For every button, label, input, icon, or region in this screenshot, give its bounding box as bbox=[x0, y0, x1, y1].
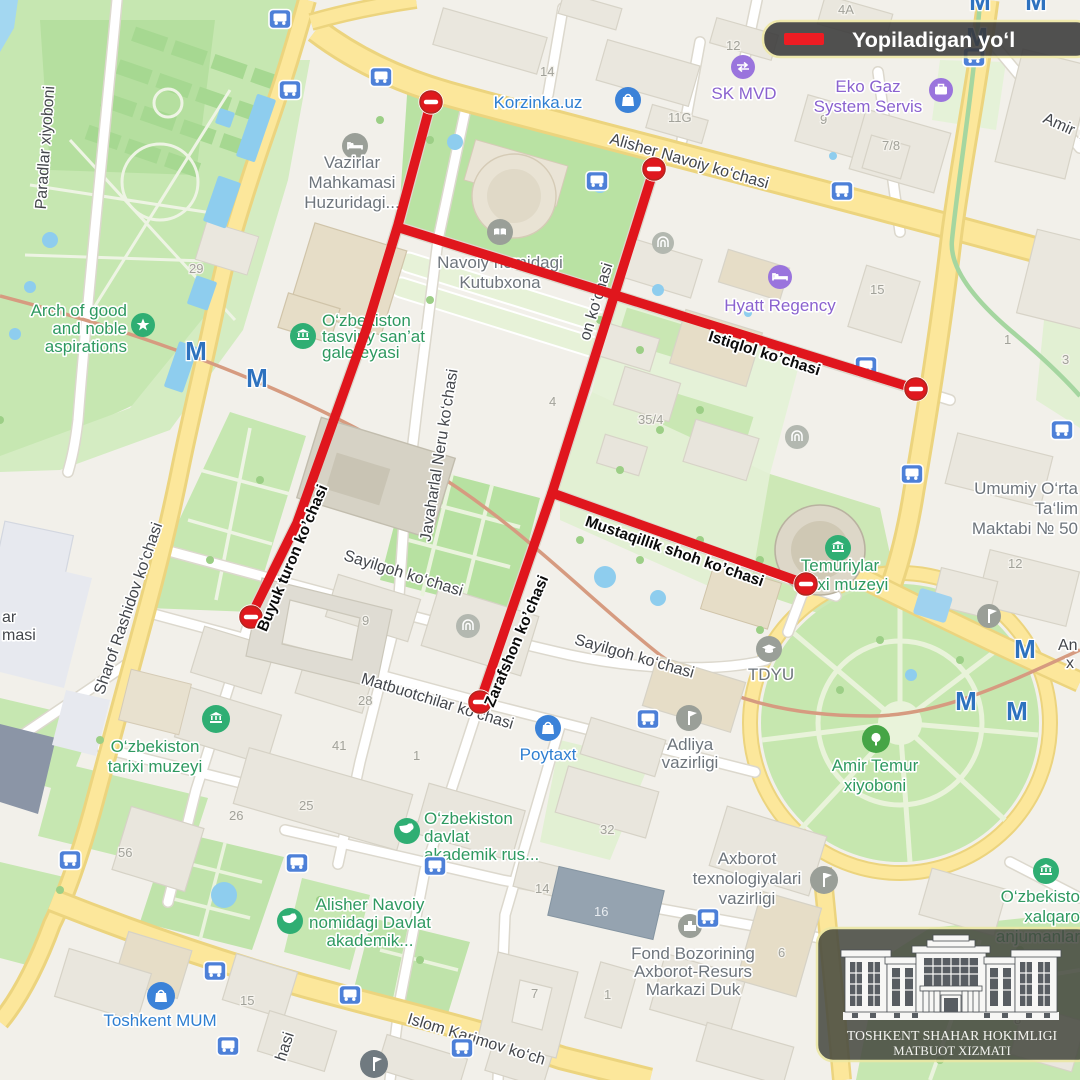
svg-text:vazirligi: vazirligi bbox=[662, 753, 719, 772]
svg-text:Mahkamasi: Mahkamasi bbox=[309, 173, 396, 192]
svg-text:Arch of good: Arch of good bbox=[31, 301, 127, 320]
svg-text:Yopiladigan yo‘l: Yopiladigan yo‘l bbox=[852, 28, 1015, 52]
svg-text:vazirligi: vazirligi bbox=[719, 889, 776, 908]
svg-text:x: x bbox=[1066, 655, 1074, 672]
svg-text:14: 14 bbox=[535, 881, 549, 896]
svg-text:TOSHKENT SHAHAR HOKIMLIGI: TOSHKENT SHAHAR HOKIMLIGI bbox=[847, 1028, 1058, 1043]
svg-text:32: 32 bbox=[600, 822, 614, 837]
svg-text:56: 56 bbox=[118, 845, 132, 860]
svg-text:14: 14 bbox=[540, 64, 554, 79]
svg-text:Temuriylar: Temuriylar bbox=[801, 556, 880, 575]
svg-text:Axborot-Resurs: Axborot-Resurs bbox=[634, 962, 752, 981]
svg-text:Kutubxona: Kutubxona bbox=[459, 273, 541, 292]
svg-text:Eko Gaz: Eko Gaz bbox=[835, 77, 900, 96]
svg-text:aspirations: aspirations bbox=[45, 337, 127, 356]
svg-text:Maktabi № 50: Maktabi № 50 bbox=[972, 519, 1078, 538]
svg-text:M: M bbox=[246, 363, 268, 393]
svg-text:11G: 11G bbox=[668, 110, 692, 125]
svg-text:Poytaxt: Poytaxt bbox=[520, 745, 577, 764]
svg-text:Amir Temur: Amir Temur bbox=[832, 756, 919, 775]
svg-text:29: 29 bbox=[189, 261, 203, 276]
svg-text:tarixi muzeyi: tarixi muzeyi bbox=[108, 757, 202, 776]
svg-text:ar: ar bbox=[2, 609, 17, 626]
svg-text:16: 16 bbox=[594, 904, 608, 919]
svg-text:O‘zbekisto: O‘zbekisto bbox=[1001, 887, 1080, 906]
svg-text:Ta‘lim: Ta‘lim bbox=[1035, 499, 1078, 518]
svg-text:Fond Bozorining: Fond Bozorining bbox=[631, 944, 755, 963]
svg-text:7: 7 bbox=[531, 986, 538, 1001]
svg-text:Hyatt Regency: Hyatt Regency bbox=[724, 296, 836, 315]
svg-text:Umumiy O‘rta: Umumiy O‘rta bbox=[974, 479, 1078, 498]
svg-text:xiyoboni: xiyoboni bbox=[844, 776, 906, 795]
svg-text:Korzinka.uz: Korzinka.uz bbox=[494, 93, 583, 112]
svg-text:M: M bbox=[1014, 634, 1036, 664]
svg-text:15: 15 bbox=[870, 282, 884, 297]
svg-text:41: 41 bbox=[332, 738, 346, 753]
svg-text:M: M bbox=[1025, 0, 1047, 16]
svg-text:Markazi Duk: Markazi Duk bbox=[646, 980, 741, 999]
svg-text:M: M bbox=[969, 0, 991, 16]
svg-text:nomidagi Davlat: nomidagi Davlat bbox=[309, 913, 431, 932]
svg-text:M: M bbox=[955, 686, 977, 716]
svg-text:Adliya: Adliya bbox=[667, 735, 714, 754]
svg-text:O‘zbekiston: O‘zbekiston bbox=[424, 809, 513, 828]
svg-text:O‘zbekiston: O‘zbekiston bbox=[111, 737, 200, 756]
svg-text:Toshkent MUM: Toshkent MUM bbox=[103, 1011, 216, 1030]
svg-text:M: M bbox=[1006, 696, 1028, 726]
svg-text:4A: 4A bbox=[838, 2, 854, 17]
svg-text:12: 12 bbox=[1008, 556, 1022, 571]
svg-text:masi: masi bbox=[2, 627, 36, 644]
svg-text:Vazirlar: Vazirlar bbox=[324, 153, 381, 172]
svg-text:xalqaro: xalqaro bbox=[1024, 907, 1080, 926]
svg-text:akademik...: akademik... bbox=[327, 931, 414, 950]
svg-text:1: 1 bbox=[604, 987, 611, 1002]
svg-text:1: 1 bbox=[413, 748, 420, 763]
svg-text:9: 9 bbox=[362, 613, 369, 628]
svg-text:4: 4 bbox=[549, 394, 556, 409]
svg-text:15: 15 bbox=[240, 993, 254, 1008]
svg-text:35/4: 35/4 bbox=[638, 412, 663, 427]
svg-text:M: M bbox=[185, 336, 207, 366]
svg-text:1: 1 bbox=[1004, 332, 1011, 347]
svg-text:and noble: and noble bbox=[52, 319, 127, 338]
svg-text:3: 3 bbox=[1062, 352, 1069, 367]
svg-text:25: 25 bbox=[299, 798, 313, 813]
svg-text:28: 28 bbox=[358, 693, 372, 708]
svg-text:TDYU: TDYU bbox=[748, 665, 794, 684]
svg-text:Huzuridagi...: Huzuridagi... bbox=[304, 193, 399, 212]
svg-text:Alisher Navoiy: Alisher Navoiy bbox=[316, 895, 425, 914]
svg-text:An: An bbox=[1058, 637, 1078, 654]
svg-text:System Servis: System Servis bbox=[814, 97, 923, 116]
svg-text:26: 26 bbox=[229, 808, 243, 823]
svg-text:7/8: 7/8 bbox=[882, 138, 900, 153]
svg-text:SK MVD: SK MVD bbox=[711, 84, 776, 103]
svg-text:12: 12 bbox=[726, 38, 740, 53]
svg-text:texnologiyalari: texnologiyalari bbox=[693, 869, 802, 888]
svg-text:MATBUOT XIZMATI: MATBUOT XIZMATI bbox=[893, 1044, 1010, 1058]
svg-text:davlat: davlat bbox=[424, 827, 470, 846]
svg-text:Axborot: Axborot bbox=[718, 849, 777, 868]
svg-text:6: 6 bbox=[778, 945, 785, 960]
